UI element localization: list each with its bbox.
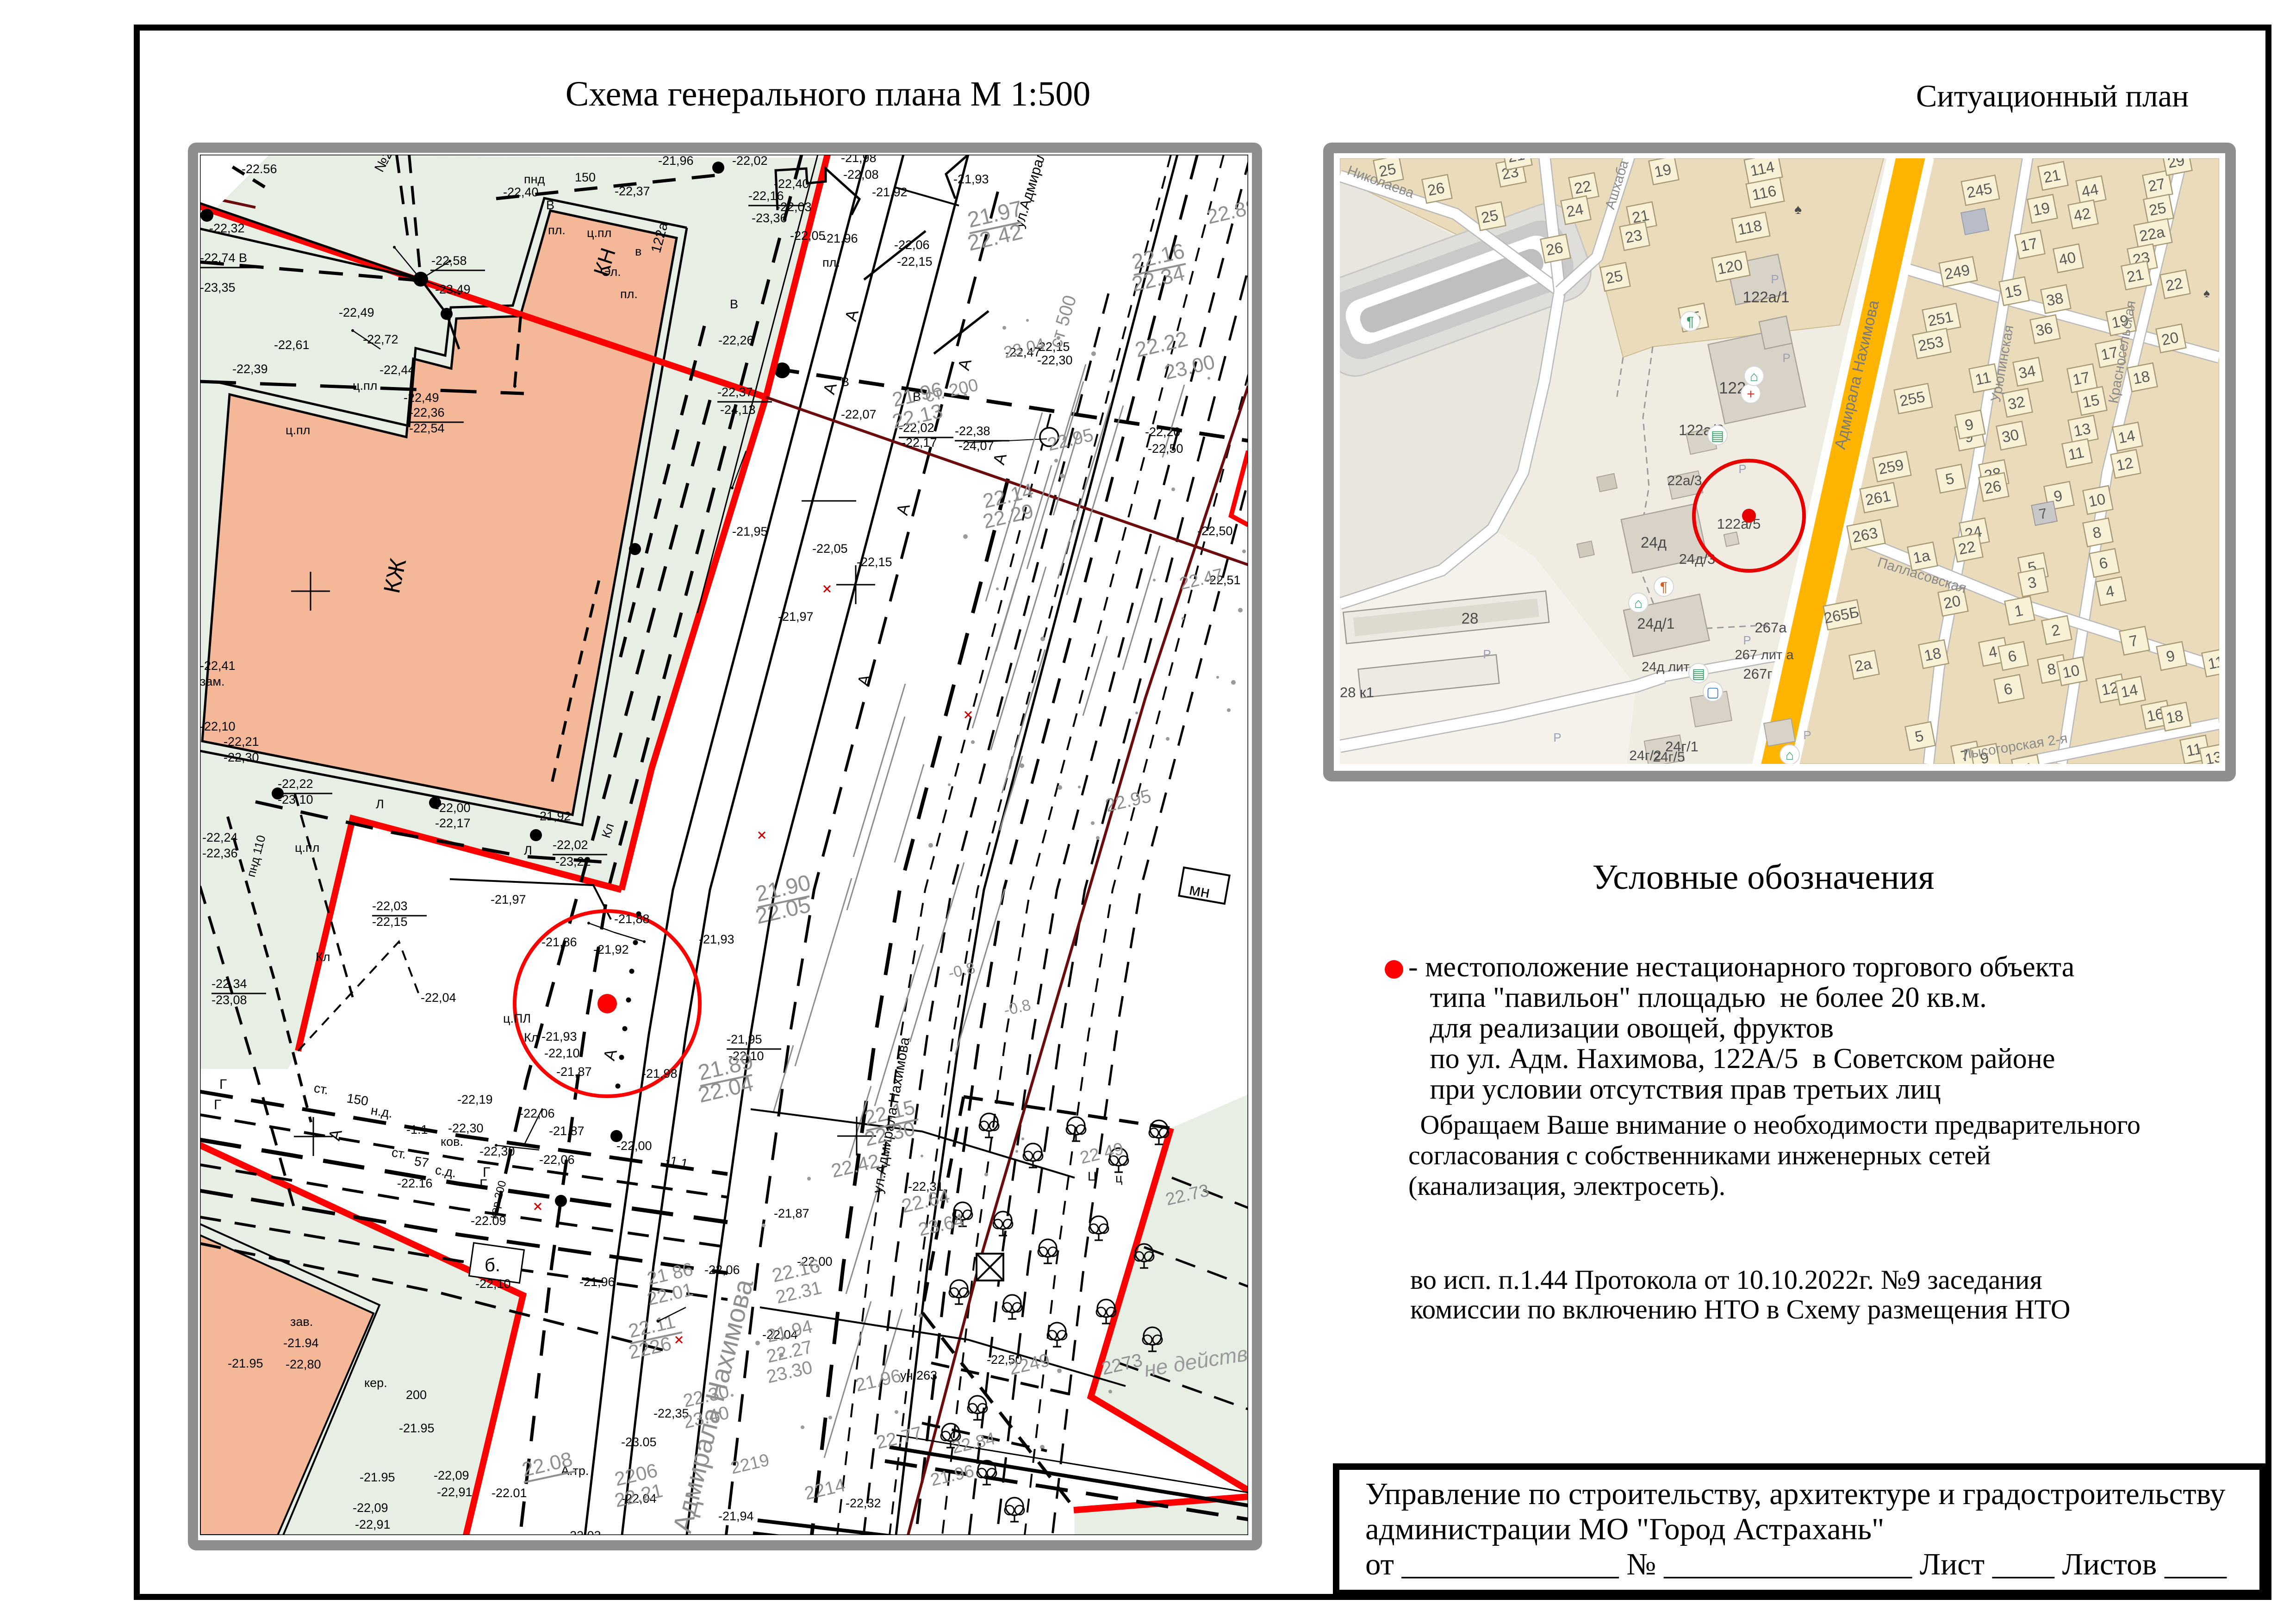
svg-text:Р: Р [1782, 351, 1790, 365]
svg-text:-21,93: -21,93 [541, 1030, 577, 1043]
svg-text:-22,38: -22,38 [955, 424, 990, 438]
svg-text:-22,40: -22,40 [503, 185, 539, 199]
svg-text:-22,41: -22,41 [200, 659, 236, 673]
svg-text:-22,04: -22,04 [421, 991, 456, 1005]
svg-text:-21,92: -21,92 [593, 943, 629, 956]
svg-text:36: 36 [2034, 319, 2054, 339]
svg-text:34: 34 [2017, 362, 2037, 382]
svg-text:уч.263: уч.263 [900, 1368, 937, 1382]
svg-text:пл.: пл. [548, 223, 566, 237]
svg-text:-23,35: -23,35 [200, 281, 236, 294]
svg-text:22: 22 [1573, 177, 1593, 197]
svg-text:-21,95: -21,95 [727, 1032, 762, 1046]
svg-text:-22,06: -22,06 [704, 1263, 740, 1277]
svg-text:-21,95: -21,95 [732, 525, 768, 538]
svg-text:-22,06: -22,06 [539, 1153, 575, 1167]
svg-text:♠: ♠ [1794, 202, 1802, 217]
svg-text:-22,26: -22,26 [718, 333, 754, 347]
svg-text:-22,15: -22,15 [857, 555, 892, 569]
svg-text:-23,08: -23,08 [212, 993, 247, 1007]
svg-text:Л: Л [376, 797, 384, 811]
svg-text:ц.пл: ц.пл [587, 226, 611, 240]
svg-text:-22,09: -22,09 [353, 1501, 388, 1515]
svg-text:-21.95: -21.95 [399, 1421, 435, 1435]
svg-text:-22,02: -22,02 [732, 155, 768, 168]
svg-text:-21,86: -21,86 [541, 935, 577, 949]
svg-text:-22,15: -22,15 [372, 915, 408, 929]
svg-text:267 лит а: 267 лит а [1735, 648, 1794, 662]
svg-text:-21,93: -21,93 [953, 172, 989, 186]
svg-text:-22,30: -22,30 [224, 750, 259, 764]
svg-text:¶: ¶ [1686, 314, 1694, 330]
svg-text:пл.: пл. [822, 256, 840, 269]
svg-text:-22,03: -22,03 [372, 899, 408, 913]
svg-text:-22,49: -22,49 [404, 391, 439, 405]
svg-text:ст.: ст. [391, 1145, 407, 1162]
svg-text:зам.: зам. [200, 675, 224, 688]
svg-text:24г/2: 24г/2 [1629, 748, 1661, 763]
svg-text:Кл: Кл [524, 1031, 538, 1044]
svg-text:17: 17 [2019, 235, 2039, 255]
svg-text:1а: 1а [1911, 546, 1932, 566]
svg-text:⌂: ⌂ [1750, 369, 1758, 384]
svg-text:В: В [546, 198, 554, 212]
svg-text:Г: Г [214, 1097, 221, 1112]
svg-text:-22,30: -22,30 [448, 1121, 484, 1135]
svg-text:ц.ПЛ: ц.ПЛ [503, 1012, 531, 1025]
svg-text:-23,22: -23,22 [555, 855, 591, 868]
svg-text:Р: Р [1553, 731, 1561, 744]
svg-text:ст.: ст. [313, 1081, 330, 1097]
svg-text:-22,74 В: -22,74 В [200, 251, 247, 265]
svg-text:-22.16: -22.16 [397, 1176, 433, 1190]
svg-text:Р: Р [1483, 647, 1491, 661]
svg-text:12: 12 [2115, 454, 2134, 474]
svg-text:зав.: зав. [290, 1315, 313, 1329]
svg-text:-22,49: -22,49 [339, 306, 374, 319]
svg-text:11: 11 [2066, 443, 2085, 463]
svg-text:▤: ▤ [1692, 666, 1705, 681]
svg-text:Р: Р [1771, 272, 1779, 286]
svg-text:-22,36: -22,36 [409, 406, 445, 419]
svg-text:-21,98: -21,98 [642, 1067, 678, 1081]
svg-text:-22,32: -22,32 [846, 1496, 881, 1510]
svg-text:б.: б. [485, 1255, 500, 1275]
svg-text:♠: ♠ [2203, 286, 2210, 300]
svg-text:25: 25 [1604, 267, 1624, 287]
svg-text:¶: ¶ [1660, 580, 1668, 595]
svg-text:42: 42 [2072, 205, 2092, 225]
svg-text:122а/1: 122а/1 [1743, 288, 1790, 306]
svg-text:24: 24 [1565, 200, 1585, 220]
svg-text:ц.пл: ц.пл [295, 841, 319, 855]
svg-text:15: 15 [2003, 281, 2023, 301]
svg-text:11: 11 [1973, 369, 1992, 388]
svg-text:2а: 2а [1853, 655, 1873, 675]
svg-text:14: 14 [2119, 681, 2139, 701]
svg-text:Р: Р [1743, 633, 1751, 647]
svg-text:⌂: ⌂ [1634, 596, 1643, 611]
svg-text:ц.пл: ц.пл [286, 423, 310, 437]
svg-text:-22,20: -22,20 [1145, 425, 1181, 439]
svg-text:-21.95: -21.95 [360, 1470, 395, 1484]
svg-text:10: 10 [2061, 662, 2081, 681]
svg-text:19: 19 [1653, 161, 1673, 181]
svg-text:-21,97: -21,97 [491, 893, 526, 906]
svg-text:-23,49: -23,49 [435, 282, 471, 296]
svg-text:⌂: ⌂ [1786, 748, 1794, 763]
svg-text:-22,61: -22,61 [274, 338, 310, 352]
svg-text:-22,19: -22,19 [457, 1093, 493, 1106]
svg-text:-21,96: -21,96 [658, 155, 694, 168]
svg-text:ц: ц [1115, 1171, 1122, 1185]
svg-text:-22,02: -22,02 [553, 838, 588, 852]
svg-text:25: 25 [1480, 206, 1500, 226]
svg-text:267а: 267а [1755, 619, 1787, 636]
svg-text:-21,96: -21,96 [579, 1275, 615, 1289]
svg-text:-21,93: -21,93 [699, 932, 734, 946]
svg-text:150: 150 [575, 170, 596, 184]
svg-text:22: 22 [1957, 538, 1977, 558]
svg-text:20: 20 [1942, 592, 1962, 612]
svg-text:-22,08: -22,08 [843, 168, 879, 181]
svg-text:38: 38 [2045, 289, 2065, 309]
svg-text:21: 21 [2125, 266, 2145, 286]
svg-text:267г: 267г [1743, 666, 1772, 682]
svg-text:-21.95: -21.95 [228, 1356, 263, 1370]
svg-text:10: 10 [2087, 490, 2107, 510]
svg-text:26: 26 [1426, 179, 1446, 199]
svg-text:В: В [730, 297, 738, 311]
svg-text:25: 25 [2147, 199, 2167, 219]
svg-text:18: 18 [2131, 368, 2151, 387]
svg-text:-24,13: -24,13 [720, 403, 756, 417]
svg-text:-22,15: -22,15 [897, 255, 933, 269]
svg-text:-22,54: -22,54 [409, 421, 445, 435]
svg-text:Кл: Кл [316, 950, 330, 964]
svg-text:ц.пл: ц.пл [353, 379, 377, 393]
svg-text:-23,10: -23,10 [278, 793, 313, 806]
svg-text:-21,92: -21,92 [535, 809, 571, 823]
svg-text:22: 22 [2164, 275, 2184, 294]
svg-text:40: 40 [2057, 249, 2077, 269]
svg-text:-22,80: -22,80 [286, 1357, 321, 1371]
svg-text:-21.94: -21.94 [283, 1336, 319, 1350]
svg-text:пнд: пнд [524, 172, 545, 186]
svg-text:-22,10: -22,10 [475, 1277, 511, 1291]
svg-text:Ц: Ц [1088, 1169, 1097, 1183]
svg-text:-21,87: -21,87 [549, 1124, 585, 1138]
svg-text:-22,07: -22,07 [841, 407, 877, 421]
svg-text:-22,50: -22,50 [1148, 442, 1183, 456]
svg-text:▢: ▢ [1706, 685, 1719, 700]
svg-text:-22,00: -22,00 [616, 1139, 652, 1153]
svg-text:26: 26 [1544, 239, 1564, 259]
svg-text:-1.1: -1.1 [406, 1123, 428, 1137]
svg-text:в: в [635, 244, 641, 258]
svg-text:-22,03: -22,03 [776, 200, 812, 214]
svg-text:-22,10: -22,10 [200, 719, 236, 733]
svg-text:13: 13 [2072, 420, 2092, 440]
svg-text:-22.56: -22.56 [242, 162, 277, 176]
svg-text:мн: мн [1188, 880, 1212, 902]
svg-text:В: В [841, 375, 849, 389]
svg-text:20: 20 [2160, 329, 2180, 349]
svg-text:Л: Л [524, 843, 532, 857]
svg-text:-22,91: -22,91 [355, 1518, 391, 1531]
svg-text:-22,03: -22,03 [566, 1529, 601, 1535]
svg-text:-22,00: -22,00 [435, 801, 471, 815]
svg-text:-21,97: -21,97 [778, 610, 814, 624]
svg-text:-21,92: -21,92 [872, 185, 908, 199]
svg-text:17: 17 [2071, 369, 2091, 388]
svg-text:-22,30: -22,30 [1037, 353, 1073, 367]
svg-text:-22,36: -22,36 [202, 846, 238, 860]
svg-text:пл.: пл. [620, 287, 638, 301]
svg-text:-21,98: -21,98 [841, 155, 877, 165]
svg-text:27: 27 [2147, 175, 2166, 195]
svg-text:-23.05: -23.05 [621, 1435, 657, 1449]
svg-text:200: 200 [406, 1388, 427, 1402]
svg-text:кер.: кер. [364, 1376, 387, 1390]
svg-text:-21,88: -21,88 [614, 912, 650, 926]
svg-text:-22,32: -22,32 [209, 221, 245, 235]
svg-text:-22,37: -22,37 [615, 184, 650, 198]
svg-text:-22,39: -22,39 [232, 362, 268, 376]
svg-text:Р: Р [1803, 728, 1811, 742]
svg-text:19: 19 [2031, 199, 2051, 219]
svg-text:-22,06: -22,06 [894, 238, 930, 252]
svg-text:32: 32 [2006, 393, 2026, 413]
svg-text:ков.: ков. [441, 1135, 463, 1149]
svg-text:24д: 24д [1641, 534, 1667, 551]
svg-text:Г: Г [219, 1077, 227, 1092]
svg-text:Г: Г [479, 1177, 487, 1192]
svg-text:-22,91: -22,91 [437, 1485, 473, 1499]
svg-text:▤: ▤ [1711, 428, 1724, 443]
svg-text:-22,72: -22,72 [363, 332, 398, 346]
svg-text:Р: Р [1738, 462, 1746, 476]
svg-text:18: 18 [2165, 707, 2184, 727]
svg-text:21: 21 [2042, 166, 2062, 186]
svg-text:-22,50: -22,50 [1197, 524, 1233, 538]
svg-text:-22,05: -22,05 [790, 229, 826, 243]
svg-text:18: 18 [1923, 644, 1942, 664]
svg-text:-22,22: -22,22 [278, 777, 313, 791]
svg-text:15: 15 [2081, 391, 2101, 411]
svg-text:-21,87: -21,87 [774, 1206, 809, 1220]
svg-text:28: 28 [1462, 610, 1479, 627]
svg-text:24д/1: 24д/1 [1637, 615, 1675, 632]
svg-text:-22,37: -22,37 [717, 385, 753, 399]
svg-text:-21,96: -21,96 [822, 231, 858, 245]
svg-text:14: 14 [2116, 427, 2136, 447]
svg-text:-22,44: -22,44 [380, 363, 415, 377]
svg-text:-21,94: -21,94 [718, 1509, 754, 1523]
svg-text:-22,21: -22,21 [224, 735, 259, 749]
svg-text:-22,34: -22,34 [212, 977, 247, 991]
svg-text:+: + [1747, 387, 1755, 402]
svg-text:-22,24: -22,24 [202, 831, 238, 844]
svg-text:-22,05: -22,05 [812, 542, 848, 556]
svg-text:30: 30 [2000, 426, 2020, 446]
svg-text:23: 23 [1624, 226, 1643, 246]
svg-text:-21,87: -21,87 [556, 1065, 592, 1079]
svg-text:-22,09: -22,09 [434, 1468, 469, 1482]
svg-text:57: 57 [413, 1154, 430, 1170]
svg-text:-22.01: -22.01 [492, 1486, 527, 1500]
svg-text:-22,17: -22,17 [435, 816, 471, 830]
svg-text:44: 44 [2080, 181, 2100, 200]
svg-text:13: 13 [2203, 748, 2219, 764]
svg-text:26: 26 [1983, 477, 2003, 497]
svg-text:-22,10: -22,10 [544, 1046, 580, 1060]
svg-text:28 к1: 28 к1 [1340, 684, 1374, 700]
svg-text:22а/3: 22а/3 [1667, 473, 1702, 488]
